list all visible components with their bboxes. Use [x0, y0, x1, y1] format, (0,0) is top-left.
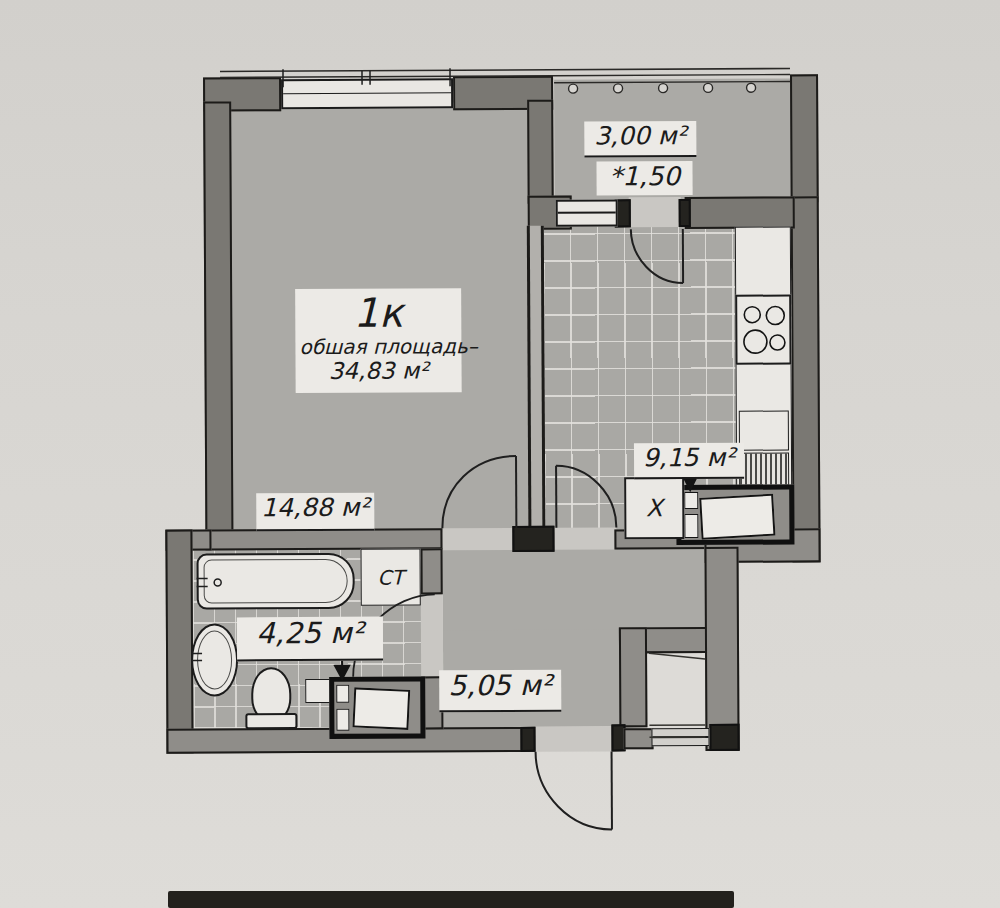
wall-partition — [420, 548, 442, 594]
door-jamb — [520, 727, 535, 752]
photo-bottom-strip — [168, 891, 734, 908]
wall — [205, 528, 442, 550]
niche-wall — [619, 627, 648, 727]
sink-compartment — [684, 514, 698, 538]
wall — [203, 101, 233, 533]
living-room-window — [281, 78, 453, 109]
hallway-niche — [647, 651, 707, 729]
vanity-compartment — [336, 685, 349, 703]
fridge-label: X — [626, 479, 682, 537]
wall-pier — [512, 526, 554, 552]
apartment-title-label: 1к обшая площадь– 34,83 м² — [295, 288, 462, 393]
corridor-window — [651, 728, 709, 746]
entrance-door-swing — [536, 751, 612, 829]
bathroom-area-label: 4,25 м² — [237, 617, 383, 662]
apartment-type: 1к — [299, 292, 457, 333]
washing-machine: СТ — [360, 548, 420, 605]
hallway-area-label: 5,05 м² — [439, 670, 561, 713]
toilet-base — [245, 713, 297, 729]
floor-plan-photo: X СТ — [0, 0, 1000, 908]
kitchen-sink-basin — [699, 494, 775, 540]
balcony-coefficient-label: *1,50 — [596, 161, 692, 196]
total-area-caption: обшая площадь– — [299, 336, 457, 358]
wall — [790, 74, 819, 202]
bathtub — [197, 553, 355, 610]
bathroom-sink — [191, 623, 238, 696]
wall — [165, 530, 193, 754]
vanity-basin — [352, 687, 410, 730]
hallway-floor-upper — [442, 547, 706, 632]
wall — [704, 547, 739, 751]
washing-machine-label: СТ — [361, 549, 419, 604]
vanity-compartment — [336, 709, 349, 731]
door-jamb — [679, 199, 691, 227]
kitchen-cabinet — [739, 410, 789, 450]
entrance-door-opening — [535, 726, 611, 751]
balcony-window — [556, 199, 618, 226]
total-area-value: 34,83 м² — [299, 358, 457, 384]
sink-compartment — [684, 492, 698, 509]
wall — [709, 724, 739, 751]
balcony-area-label: 3,00 м² — [584, 121, 696, 158]
wall-partition — [527, 226, 546, 532]
kitchen-area-label: 9,15 м² — [634, 443, 744, 480]
wall — [685, 196, 795, 229]
living-door-opening — [442, 528, 514, 550]
wall — [791, 196, 821, 562]
kitchen-door-opening — [552, 527, 616, 549]
dish-drainer — [739, 452, 789, 485]
floor-plan: X СТ — [0, 0, 1000, 908]
balcony-door-opening — [629, 197, 681, 227]
fridge: X — [624, 477, 684, 539]
wall — [623, 728, 653, 749]
wall — [527, 100, 554, 204]
living-area-label: 14,88 м² — [256, 493, 374, 532]
bathroom-door-opening — [421, 592, 443, 678]
stove — [735, 294, 791, 364]
